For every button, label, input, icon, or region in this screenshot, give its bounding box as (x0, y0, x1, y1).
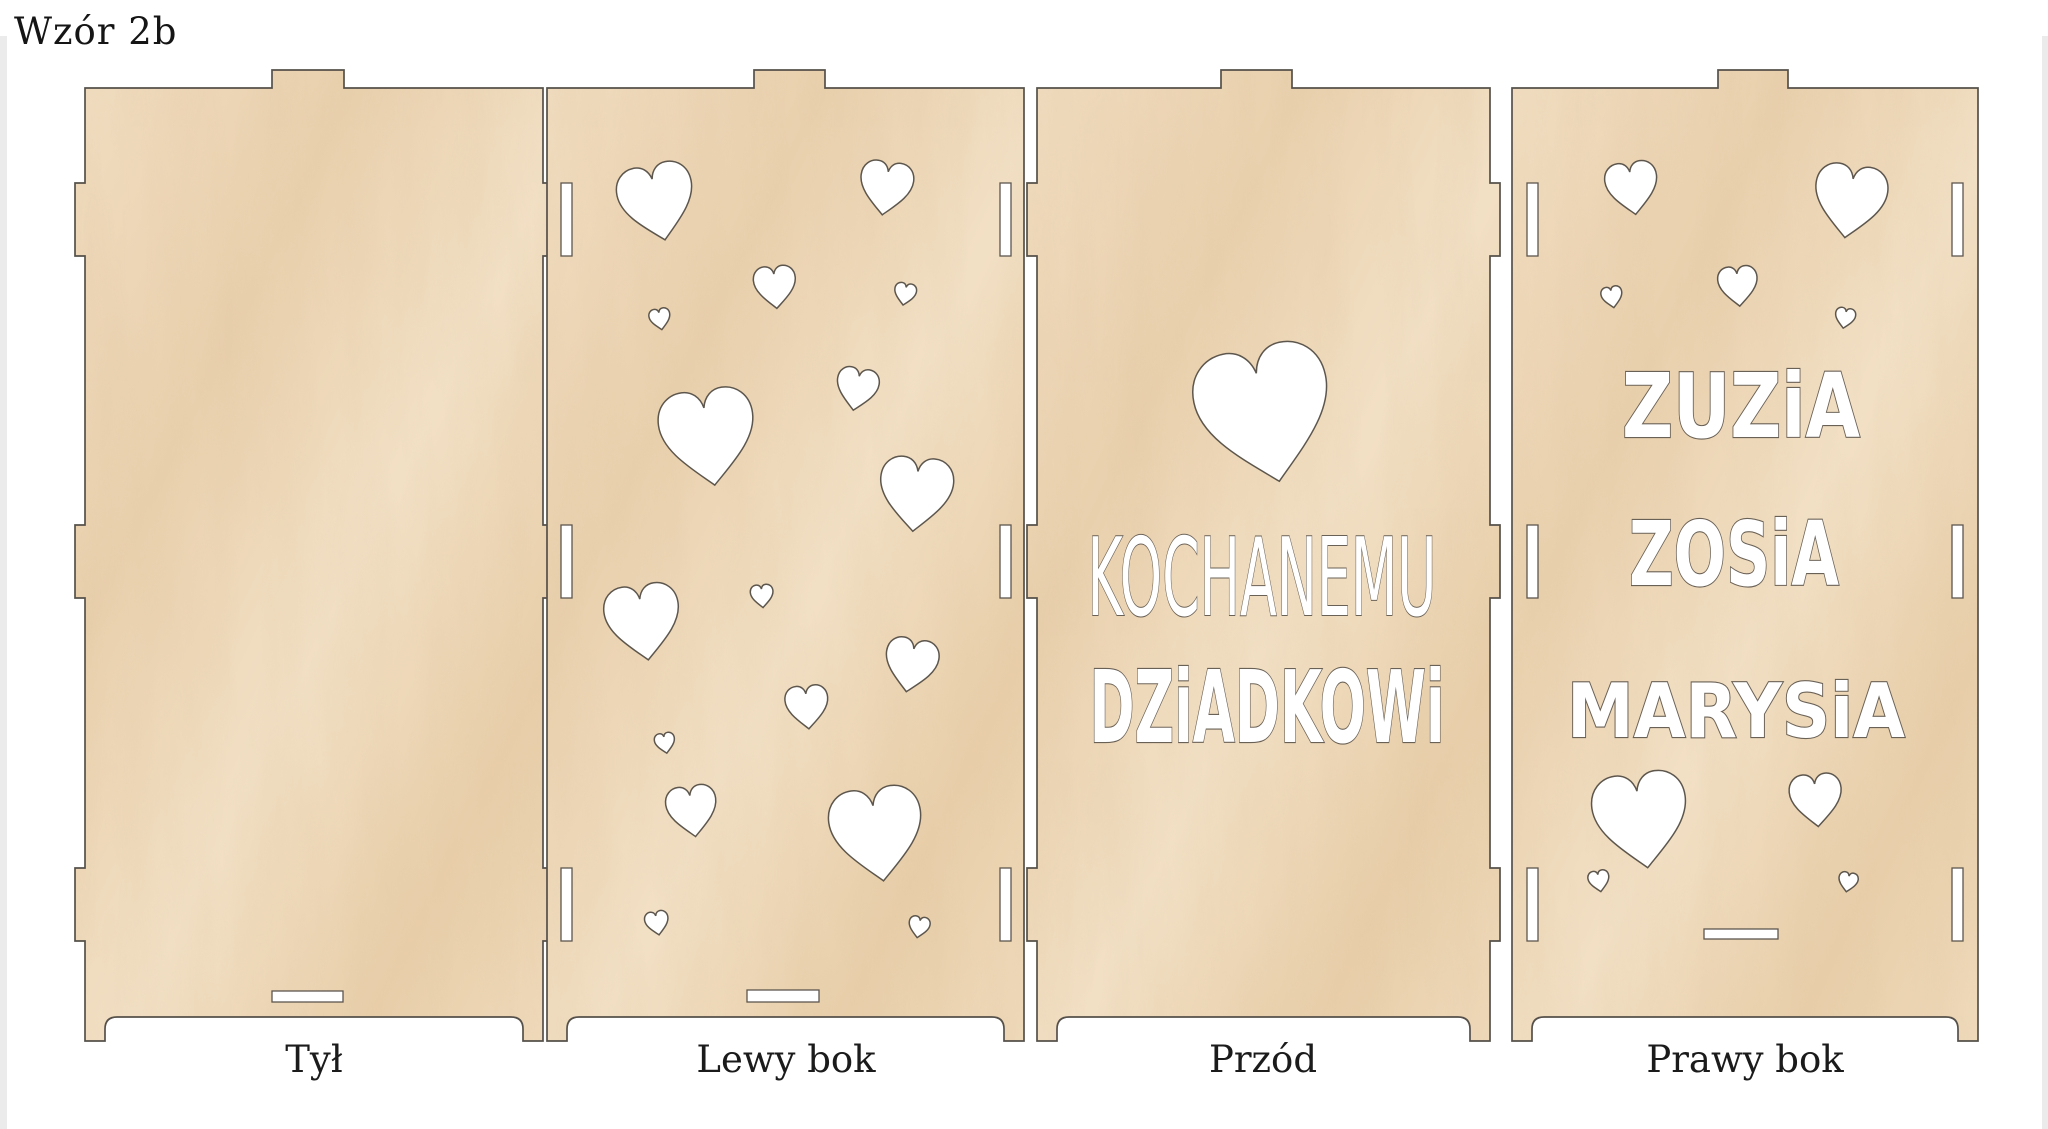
panel-label-back: Tył (285, 1038, 343, 1081)
cutout-text-zuzia: ZUZiA (1622, 354, 1860, 458)
slot-cutout (1952, 525, 1963, 598)
slot-cutout (747, 990, 819, 1002)
slot-cutout (1952, 868, 1963, 941)
panel-left-side (547, 70, 1024, 1041)
panel-front: KOCHANEMU DZiADKOWi (1027, 70, 1500, 1041)
panel-label-right-side: Prawy bok (1646, 1038, 1843, 1081)
slot-cutout (561, 525, 572, 598)
slot-cutout (1000, 525, 1011, 598)
cutout-text-dziadkowi: DZiADKOWi (1090, 649, 1445, 766)
slot-cutouts (272, 991, 343, 1002)
cutout-text-kochanemu: KOCHANEMU (1088, 516, 1437, 641)
panel-back (75, 70, 553, 1041)
slot-cutout (1704, 929, 1778, 939)
slot-cutout (1952, 183, 1963, 256)
design-sheet: Wzór 2b KOCHANEMU DZiADKOWi (0, 0, 2048, 1129)
slot-cutout (1527, 183, 1538, 256)
slot-cutout (272, 991, 343, 1002)
slot-cutout (1000, 183, 1011, 256)
slot-cutout (561, 183, 572, 256)
slot-cutout (561, 868, 572, 941)
panel-label-left-side: Lewy bok (696, 1038, 875, 1081)
scan-edge-left (0, 36, 7, 1129)
panel-label-front: Przód (1209, 1038, 1317, 1081)
panel-right-side: ZUZiA ZOSiA MARYSiA (1512, 70, 1978, 1041)
slot-cutout (1527, 868, 1538, 941)
scan-edge-right (2042, 36, 2048, 1129)
cutout-text-marysia: MARYSiA (1567, 667, 1905, 755)
page-title: Wzór 2b (14, 10, 177, 53)
slot-cutout (1000, 868, 1011, 941)
slot-cutout (1527, 525, 1538, 598)
cutout-text-zosia: ZOSiA (1629, 502, 1839, 606)
